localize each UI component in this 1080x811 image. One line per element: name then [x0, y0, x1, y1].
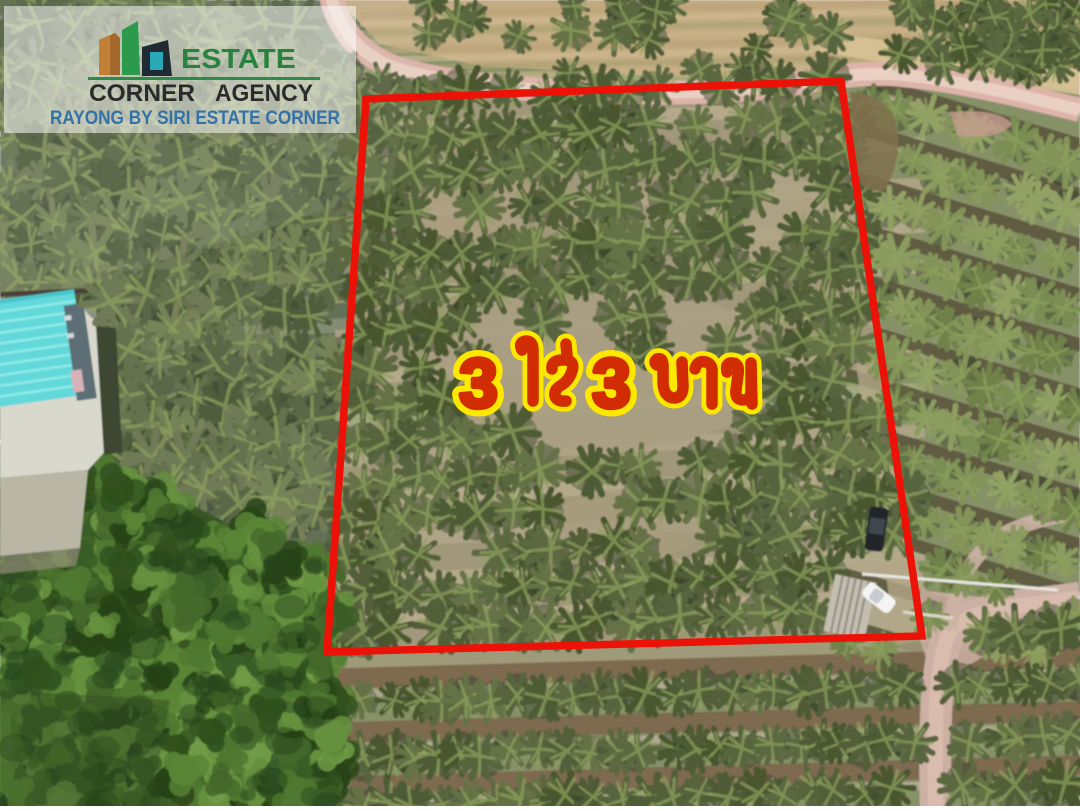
- svg-text:RAYONG BY SIRI ESTATE CORNER: RAYONG BY SIRI ESTATE CORNER: [50, 108, 340, 129]
- svg-text:ESTATE: ESTATE: [181, 43, 296, 74]
- svg-text:CORNER: CORNER: [89, 80, 195, 107]
- svg-text:3: 3: [459, 344, 498, 422]
- svg-text:3: 3: [592, 344, 631, 422]
- svg-text:AGENCY: AGENCY: [215, 80, 313, 107]
